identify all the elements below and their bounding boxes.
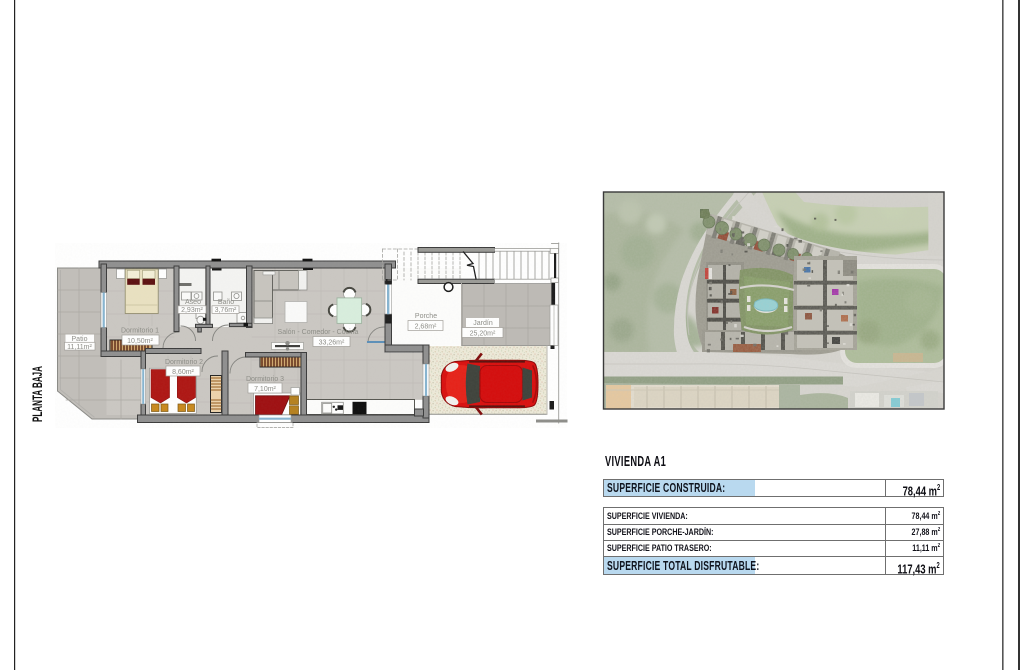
svg-text:PLANTA BAJA: PLANTA BAJA	[29, 366, 45, 422]
